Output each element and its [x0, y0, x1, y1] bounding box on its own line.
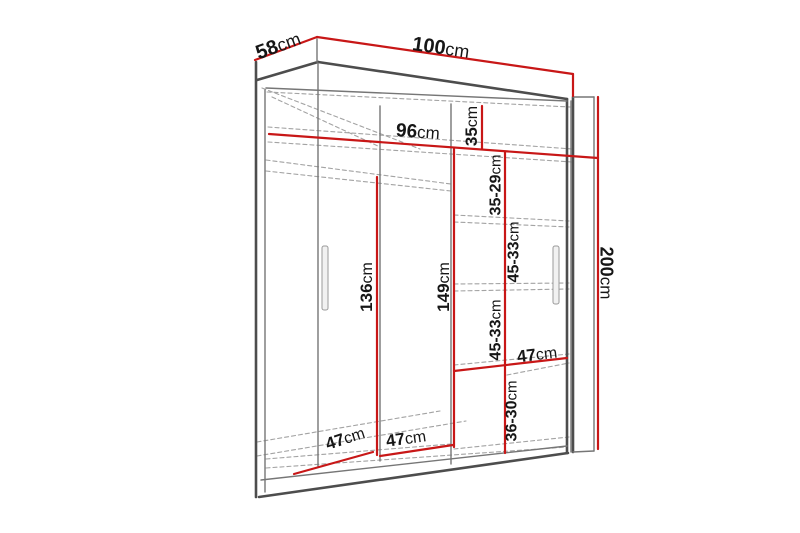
page: 58cm100cm96cm200cm35cm35-29cm45-33cm45-3… — [0, 0, 800, 533]
dimension-label-shelf-width: 47cm — [516, 343, 558, 367]
dimension-label-hanging-height: 136cm — [357, 262, 376, 312]
dimension-label-left-depth: 47cm — [323, 423, 367, 454]
dimension-label-height-right: 200cm — [597, 247, 617, 300]
wardrobe-dimension-diagram: 58cm100cm96cm200cm35cm35-29cm45-33cm45-3… — [0, 0, 800, 533]
hidden-edge-top-depth-diag-2 — [272, 97, 380, 147]
right-door-handle — [553, 246, 559, 304]
dimension-label-width-top: 100cm — [411, 33, 471, 63]
hidden-edge-rail-front — [266, 160, 451, 184]
hidden-edge-shelf-1-front — [454, 215, 569, 221]
edge-side-panel-bottom — [573, 451, 594, 452]
hidden-edge-shelf-2-back — [454, 289, 569, 291]
dimension-label-interior-width: 96cm — [395, 120, 440, 144]
dimension-label-shelf-column: 149cm — [434, 262, 453, 312]
dimension-label-section-2: 45-33cm — [506, 222, 523, 283]
dimension-label-section-3: 45-33cm — [488, 300, 505, 361]
dimension-label-top-shelf-height: 35cm — [462, 106, 481, 146]
dimension-label-section-1: 35-29cm — [488, 155, 505, 216]
left-door-handle — [322, 246, 328, 310]
edge-top-slab-left — [257, 62, 318, 80]
dimension-label-left-width: 47cm — [385, 426, 428, 450]
dimension-label-section-4: 36-30cm — [504, 381, 521, 442]
dimension-label-depth-top: 58cm — [253, 28, 304, 64]
hidden-edge-rail-back — [266, 171, 451, 191]
dimension-line-dim-47-left — [294, 452, 373, 474]
